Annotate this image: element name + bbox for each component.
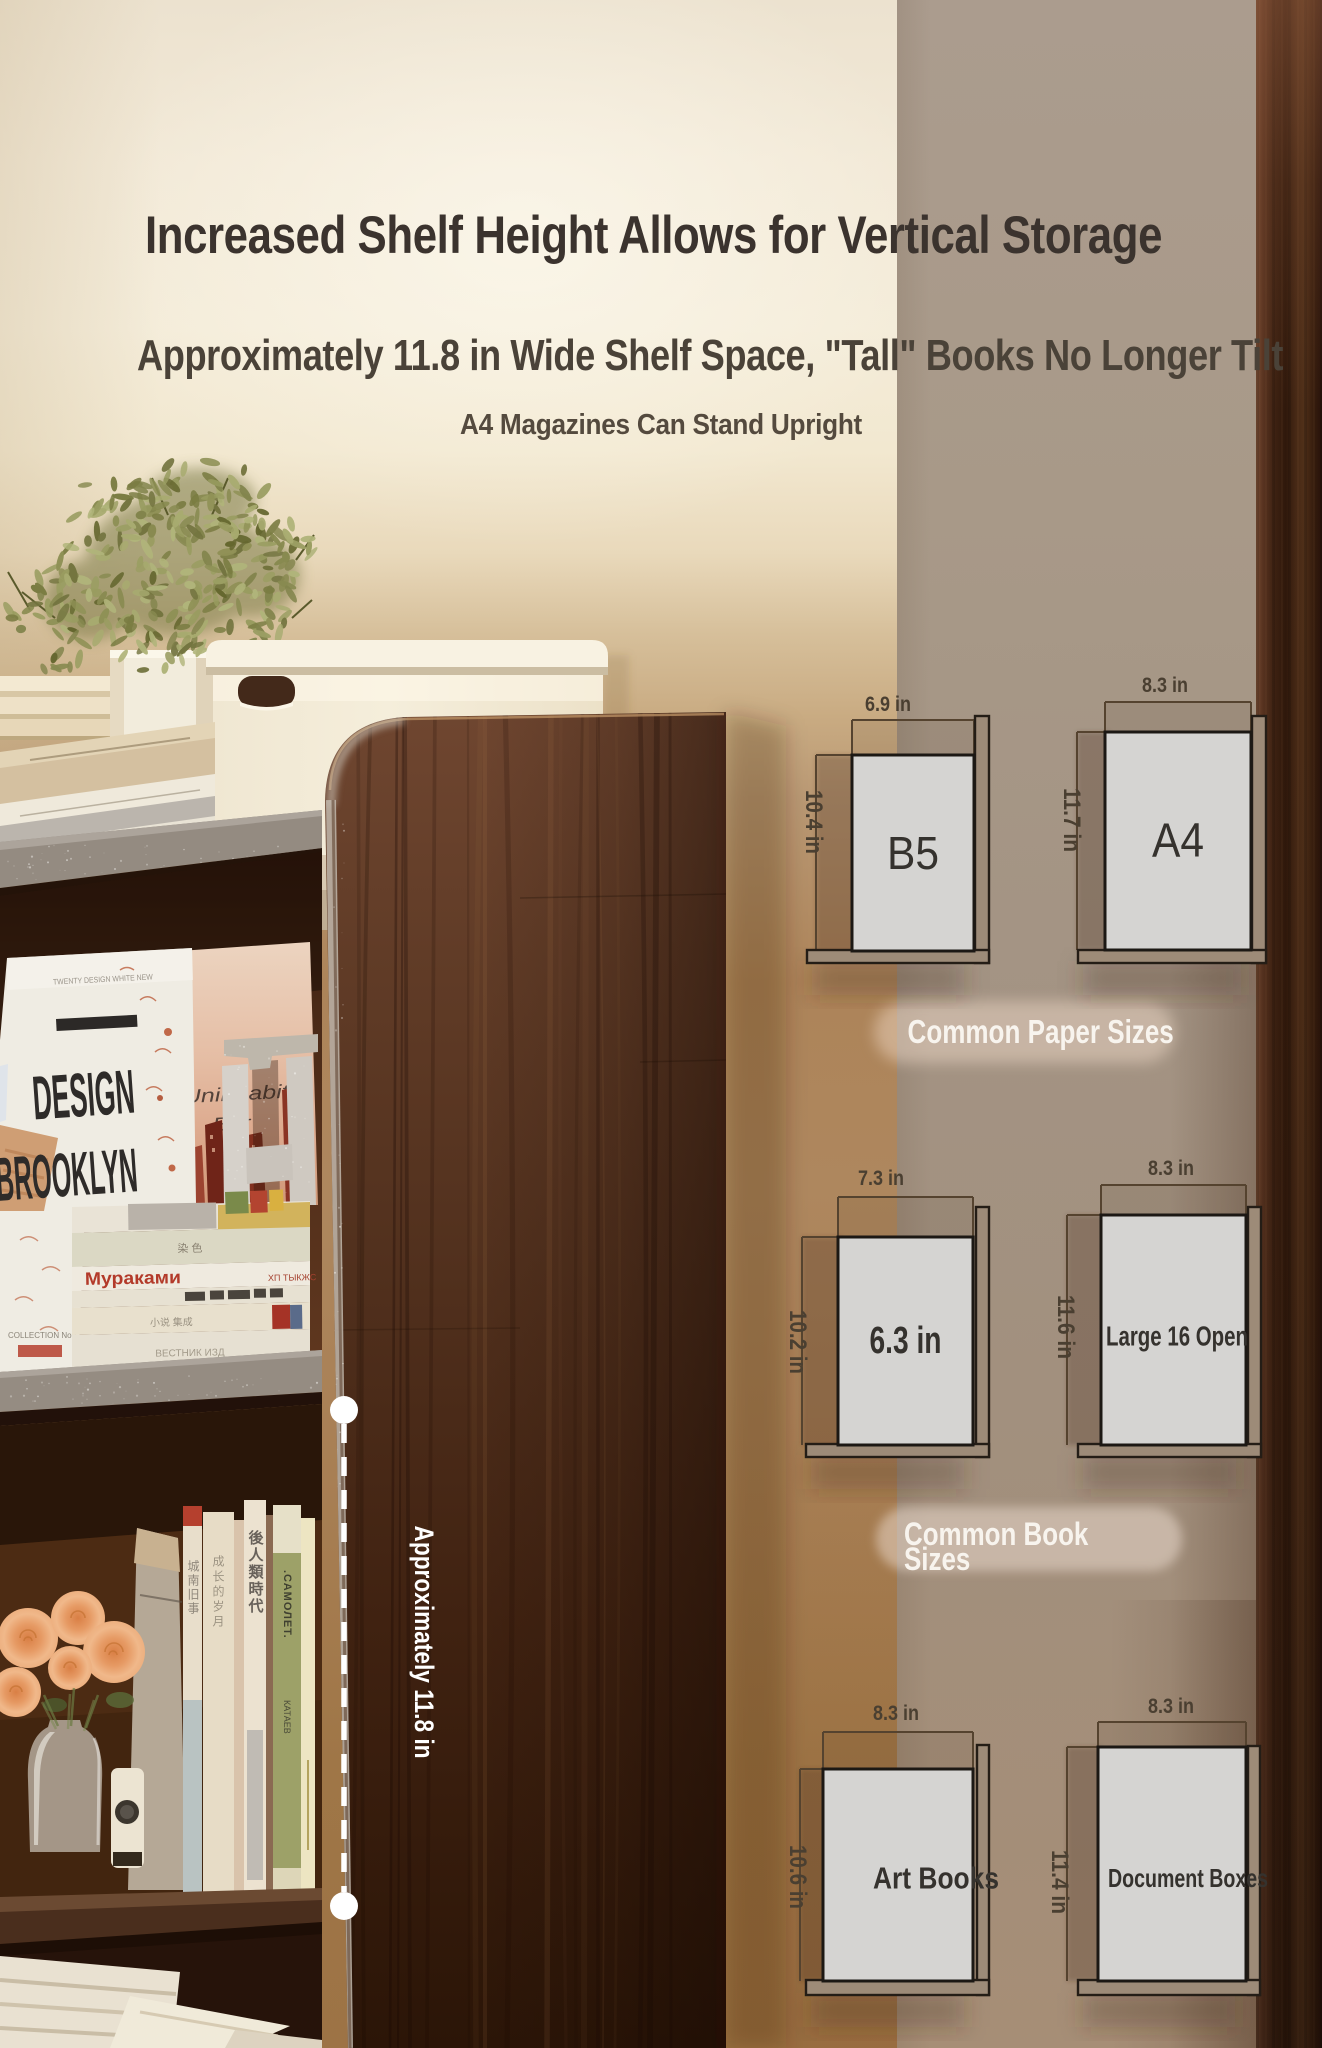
svg-text:10.4 in: 10.4 in: [800, 790, 827, 854]
svg-text:11.4 in: 11.4 in: [1046, 1850, 1073, 1914]
svg-text:6.3 in: 6.3 in: [870, 1320, 942, 1362]
svg-text:8.3 in: 8.3 in: [873, 1702, 919, 1725]
svg-text:8.3 in: 8.3 in: [1148, 1157, 1194, 1180]
svg-text:B5: B5: [887, 827, 939, 879]
svg-text:11.6 in: 11.6 in: [1052, 1295, 1079, 1359]
svg-text:Document Boxes: Document Boxes: [1108, 1863, 1268, 1893]
svg-text:10.6 in: 10.6 in: [784, 1845, 811, 1909]
svg-text:Art Books: Art Books: [873, 1861, 999, 1896]
svg-text:10.2 in: 10.2 in: [784, 1310, 811, 1374]
svg-text:7.3 in: 7.3 in: [858, 1167, 904, 1190]
svg-text:A4: A4: [1152, 815, 1204, 868]
svg-text:Large 16 Open: Large 16 Open: [1106, 1321, 1248, 1352]
svg-text:11.7 in: 11.7 in: [1058, 788, 1085, 852]
svg-text:8.3 in: 8.3 in: [1142, 674, 1188, 697]
svg-text:6.9 in: 6.9 in: [865, 693, 911, 716]
svg-text:8.3 in: 8.3 in: [1148, 1695, 1194, 1718]
